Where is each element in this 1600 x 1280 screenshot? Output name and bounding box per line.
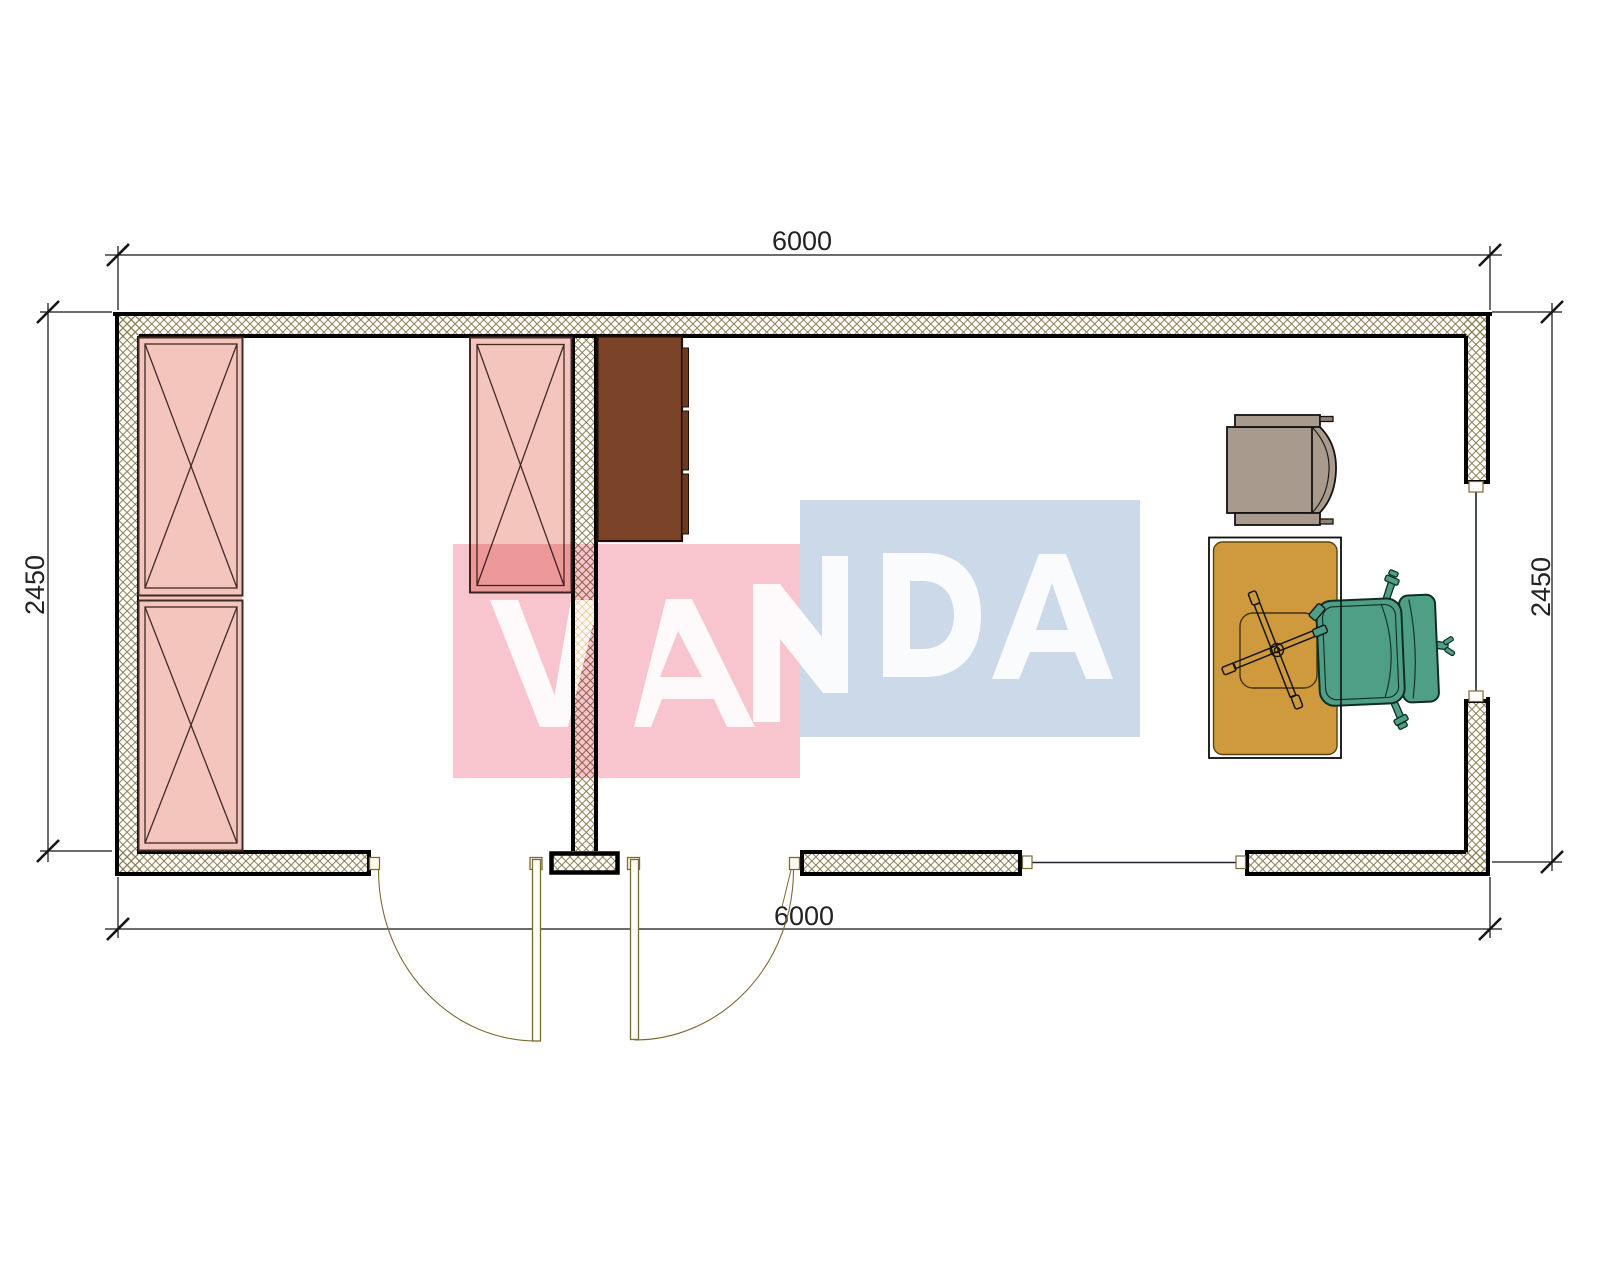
svg-text:6000: 6000 <box>774 901 834 931</box>
svg-text:2450: 2450 <box>1526 557 1556 617</box>
svg-text:6000: 6000 <box>772 226 832 256</box>
svg-text:2450: 2450 <box>20 555 50 615</box>
